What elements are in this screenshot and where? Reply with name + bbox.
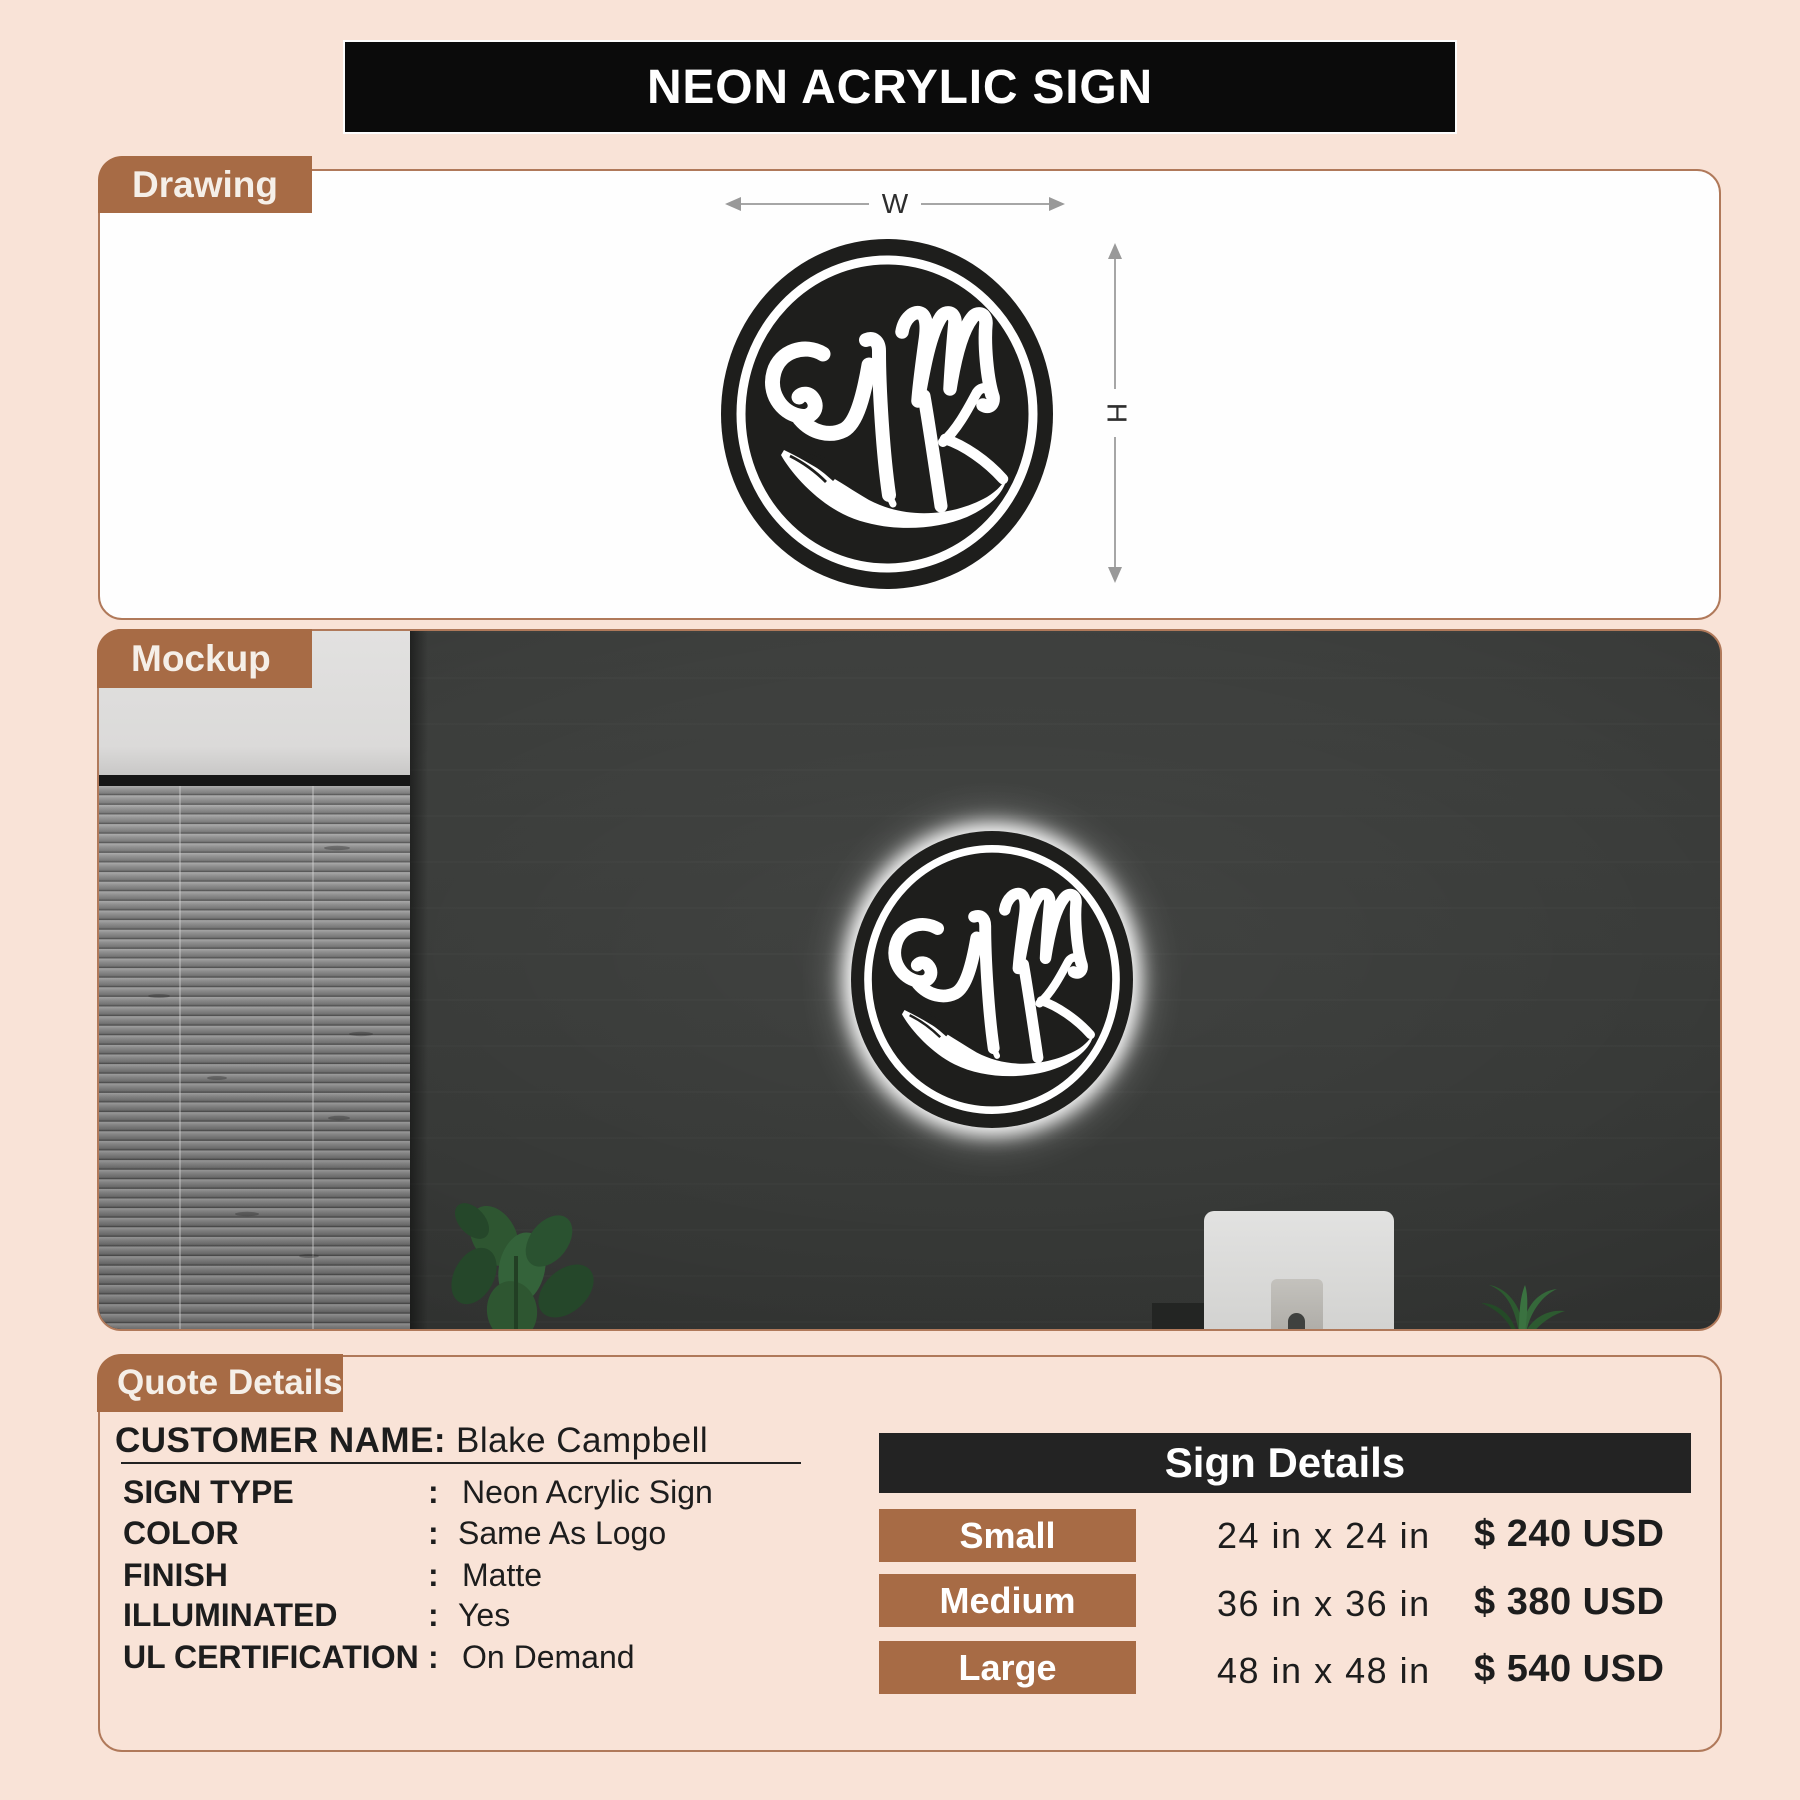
svg-text:H: H bbox=[1102, 403, 1130, 423]
svg-text:W: W bbox=[882, 191, 909, 217]
